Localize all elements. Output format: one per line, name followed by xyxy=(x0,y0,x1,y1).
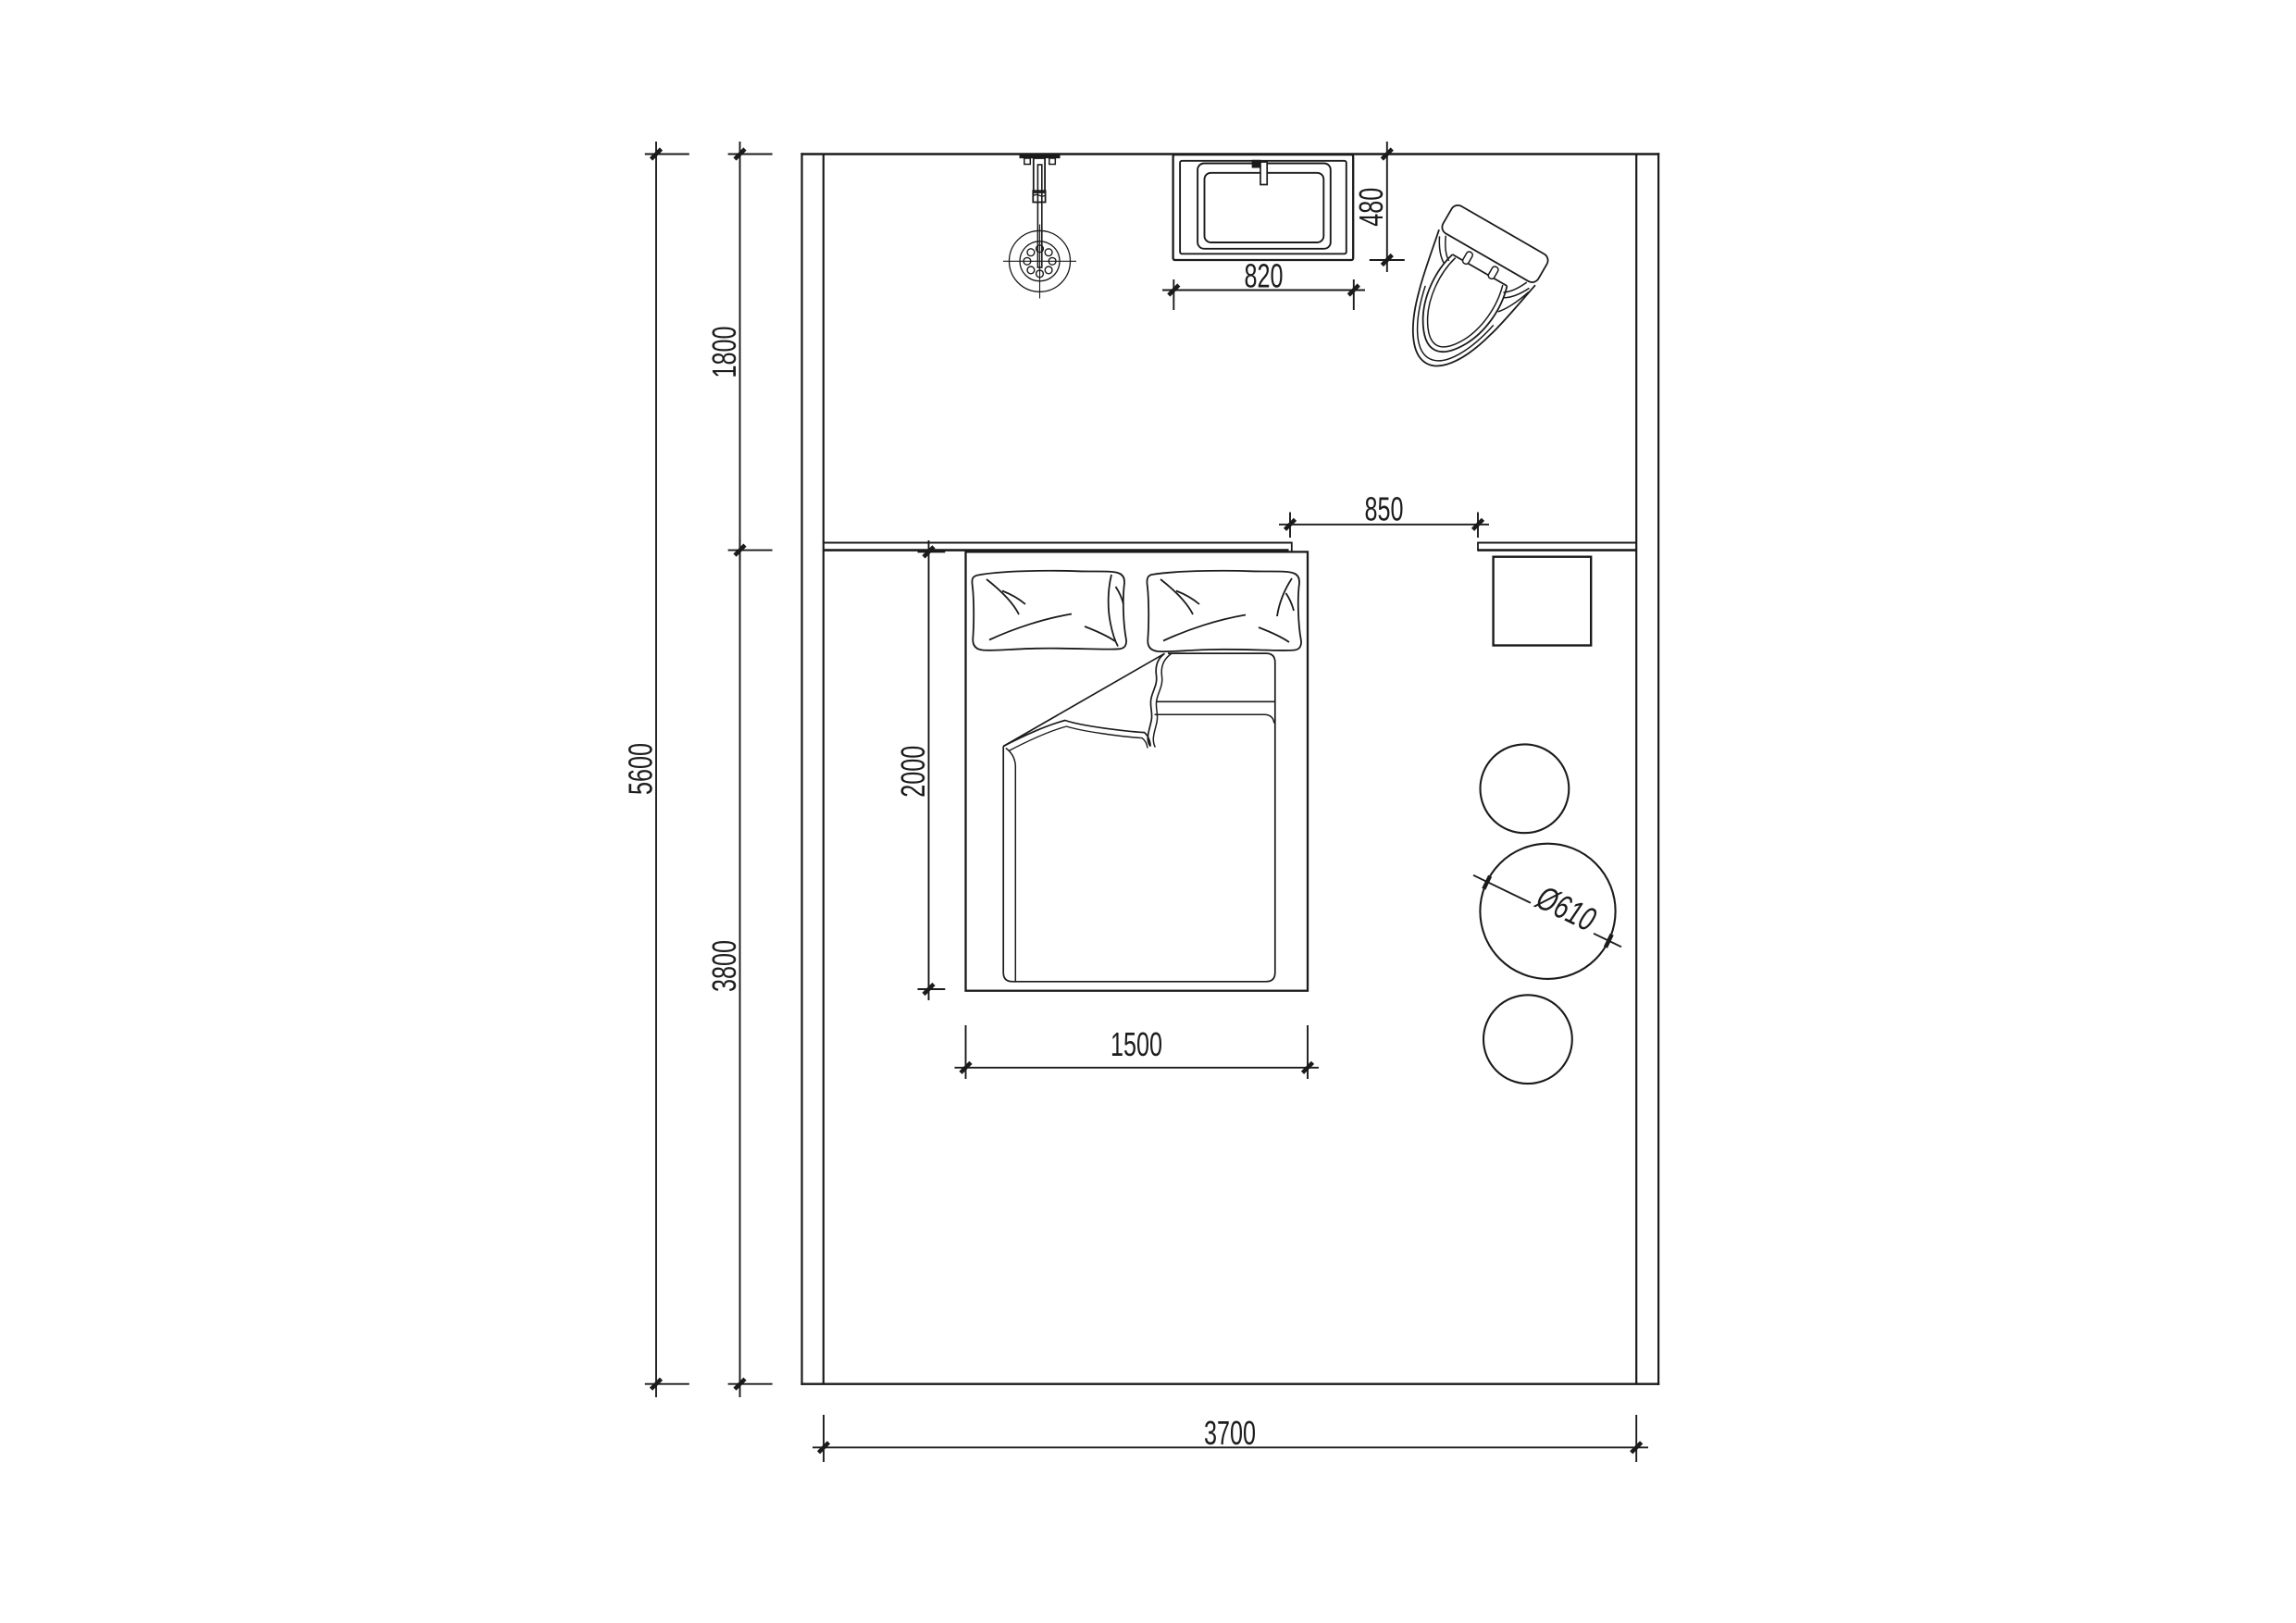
svg-text:5600: 5600 xyxy=(622,743,660,795)
svg-text:3800: 3800 xyxy=(705,940,743,992)
svg-text:850: 850 xyxy=(1365,490,1404,528)
svg-text:480: 480 xyxy=(1352,188,1390,227)
svg-text:3700: 3700 xyxy=(1204,1414,1256,1452)
svg-text:1500: 1500 xyxy=(1111,1025,1162,1063)
svg-text:1800: 1800 xyxy=(705,327,743,378)
svg-text:2000: 2000 xyxy=(894,746,932,798)
svg-text:820: 820 xyxy=(1245,256,1284,294)
